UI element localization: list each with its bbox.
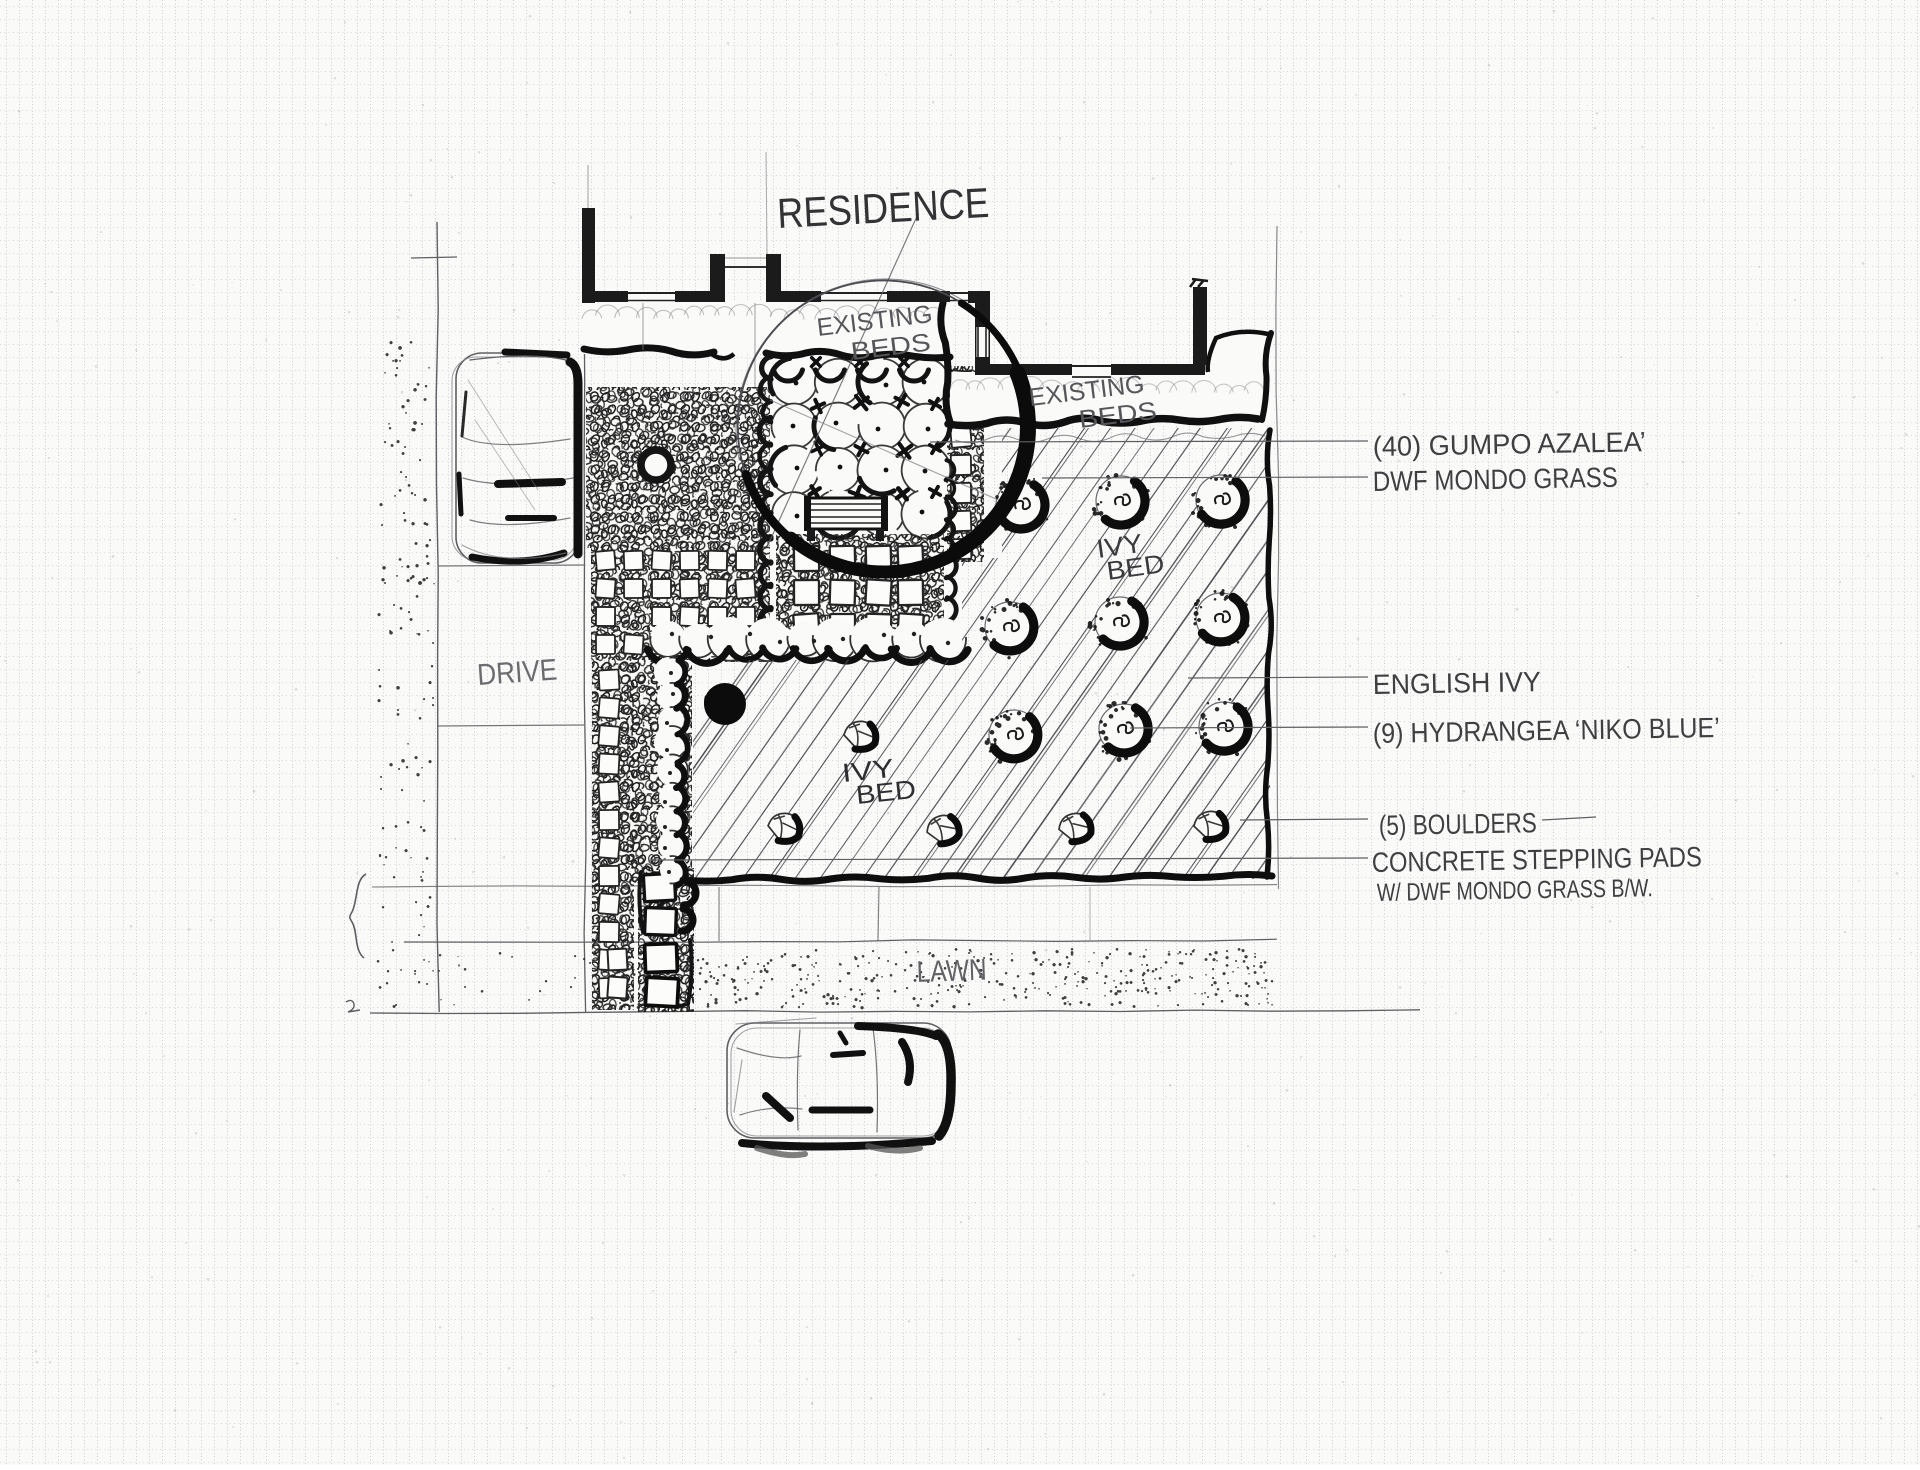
svg-text:DRIVE: DRIVE — [476, 653, 558, 692]
svg-text:CONCRETE STEPPING PADS: CONCRETE STEPPING PADS — [1372, 841, 1702, 878]
svg-text:(9) HYDRANGEA ‘NIKO BLUE’: (9) HYDRANGEA ‘NIKO BLUE’ — [1373, 712, 1720, 749]
svg-text:DWF MONDO GRASS: DWF MONDO GRASS — [1373, 462, 1619, 497]
svg-text:(40) GUMPO AZALEA’: (40) GUMPO AZALEA’ — [1373, 426, 1646, 462]
svg-text:LAWN: LAWN — [916, 954, 987, 989]
svg-text:BED: BED — [854, 774, 917, 810]
svg-text:ENGLISH IVY: ENGLISH IVY — [1373, 666, 1542, 700]
svg-text:(5) BOULDERS: (5) BOULDERS — [1379, 807, 1538, 841]
svg-text:W/ DWF MONDO GRASS B/W.: W/ DWF MONDO GRASS B/W. — [1377, 874, 1653, 907]
